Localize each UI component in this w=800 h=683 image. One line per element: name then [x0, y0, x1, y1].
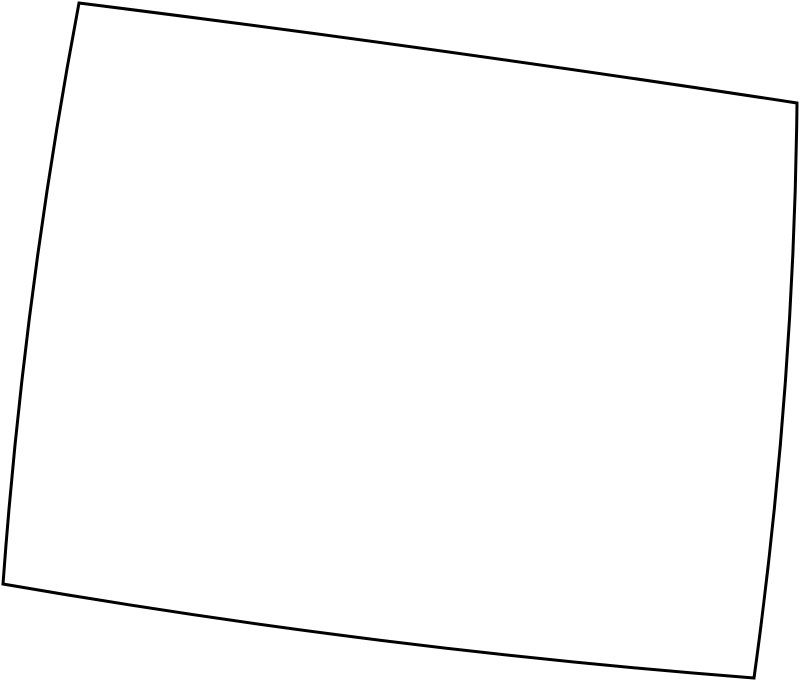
map-canvas	[0, 0, 800, 683]
state-border-path	[3, 3, 797, 678]
state-outline-map	[0, 0, 800, 683]
